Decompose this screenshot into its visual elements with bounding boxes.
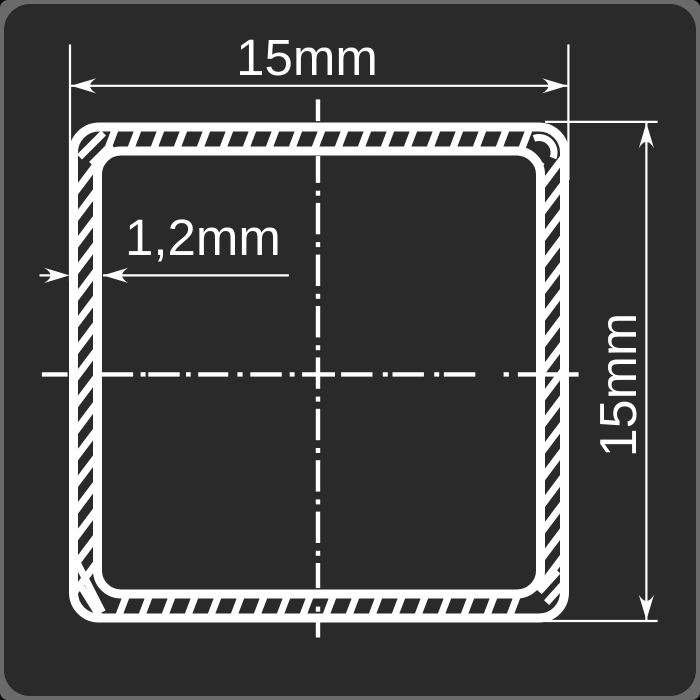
svg-text:15mm: 15mm — [236, 29, 378, 86]
svg-text:1,2mm: 1,2mm — [125, 209, 281, 266]
svg-text:15mm: 15mm — [590, 313, 648, 457]
